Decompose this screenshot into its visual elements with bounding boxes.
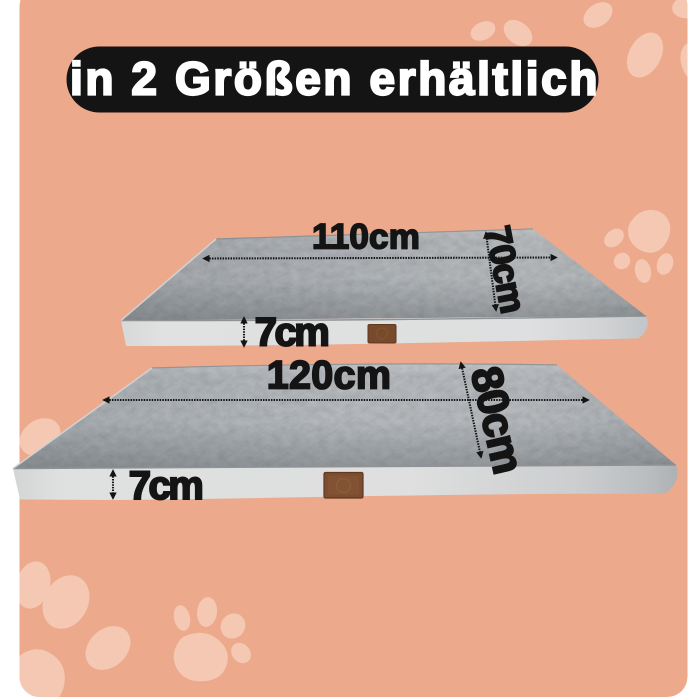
- svg-text:7cm: 7cm: [255, 311, 328, 355]
- svg-text:110cm: 110cm: [312, 218, 420, 257]
- svg-text:7cm: 7cm: [129, 464, 202, 508]
- svg-text:in 2 Größen erhältlich: in 2 Größen erhältlich: [70, 53, 600, 105]
- svg-text:120cm: 120cm: [267, 354, 392, 398]
